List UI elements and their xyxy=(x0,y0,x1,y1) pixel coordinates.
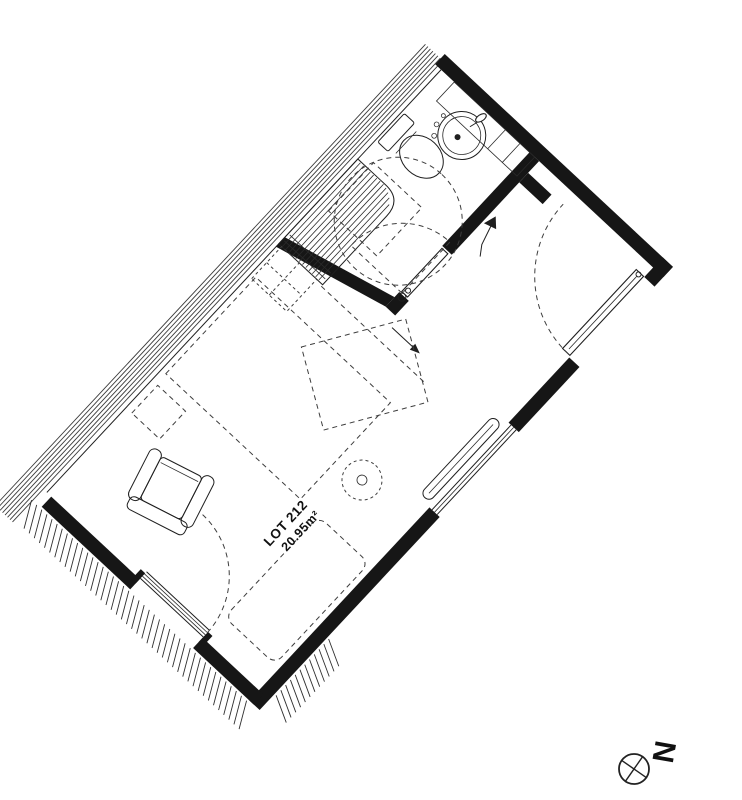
window-with-radiator xyxy=(418,412,516,515)
armchair xyxy=(122,447,216,538)
table-dashed xyxy=(301,319,428,430)
armchair-arm xyxy=(179,474,216,530)
bathroom-sliding-door xyxy=(402,248,448,297)
stairs xyxy=(279,159,402,285)
north-indicator: N xyxy=(619,738,682,784)
balcony-door-swing-arc xyxy=(145,515,264,634)
north-label: N xyxy=(645,738,681,765)
page: { "plan": { "lot_label": "LOT 212", "are… xyxy=(0,0,742,800)
entry-direction-arrow xyxy=(471,226,501,257)
bathroom-door-swing-dashed xyxy=(351,194,450,293)
armchair-back xyxy=(125,495,188,537)
compass-cross-line xyxy=(625,757,642,782)
party-wall-stripes xyxy=(0,44,447,525)
bathroom-dashed-symbols xyxy=(308,131,489,312)
double-bed-dashed xyxy=(166,277,391,499)
wall-northeast xyxy=(435,54,673,277)
wall-southeast-mid xyxy=(509,357,580,432)
floor-plan: LOT 212 20.95m² N xyxy=(0,0,742,800)
wall-southwest-upper xyxy=(42,497,140,590)
dashed-furniture xyxy=(72,225,508,664)
armchair-arm xyxy=(126,447,163,503)
sink-drain xyxy=(453,133,461,141)
mezzanine-edge-dashed xyxy=(321,286,425,383)
turning-circle-dashed xyxy=(308,131,489,312)
entry-jamb-stub xyxy=(519,173,551,204)
armchair-seat xyxy=(140,456,203,520)
plan-rotated-group: LOT 212 20.95m² xyxy=(0,40,693,752)
toilet-icon xyxy=(378,113,453,187)
plant-icon xyxy=(334,452,391,509)
